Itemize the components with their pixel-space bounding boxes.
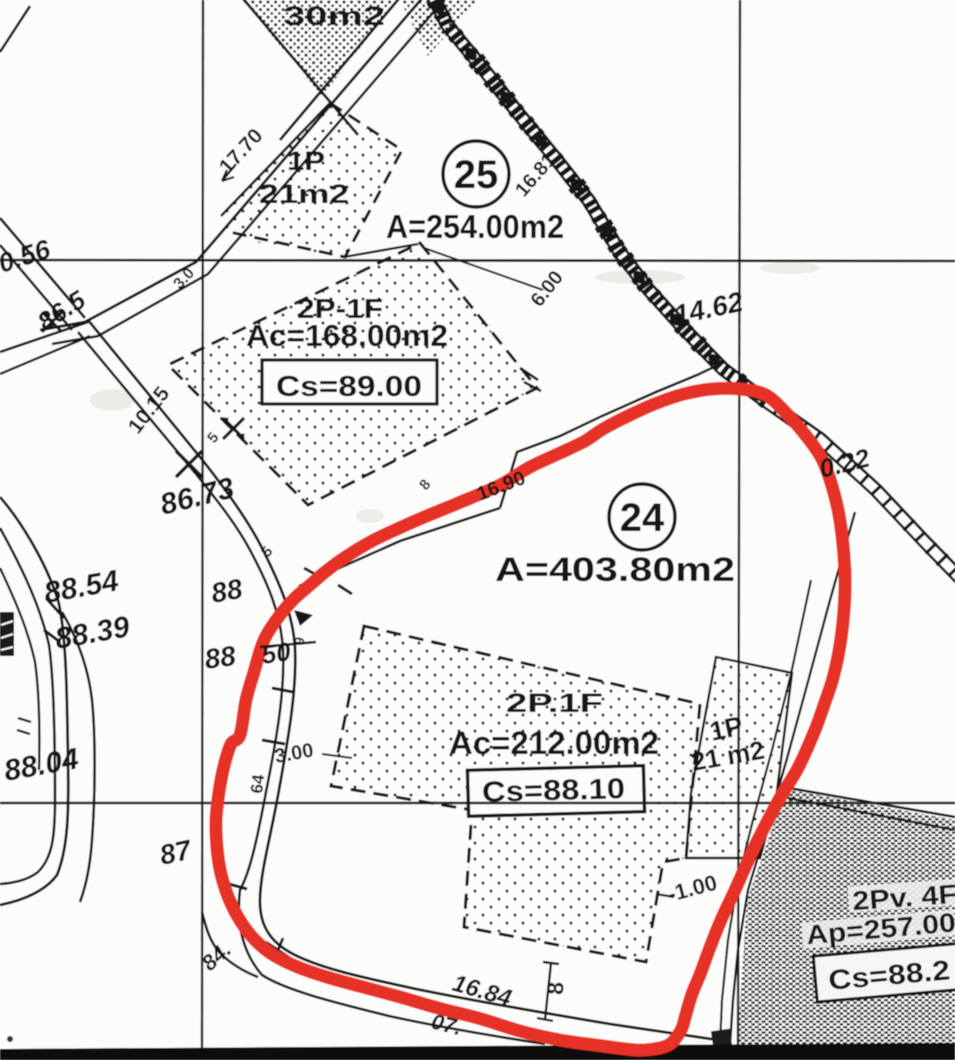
svg-text:A=254.00m2: A=254.00m2 [386,208,564,245]
svg-text:50: 50 [260,636,293,670]
svg-text:1P: 1P [287,146,325,176]
svg-text:Ac=168.00m2: Ac=168.00m2 [246,318,448,353]
svg-text:88: 88 [203,640,239,675]
svg-text:2P.1F: 2P.1F [506,688,603,718]
svg-text:Cs=88.10: Cs=88.10 [482,773,626,809]
svg-text:A=403.80m2: A=403.80m2 [495,551,735,589]
svg-text:21m2: 21m2 [259,179,349,209]
svg-text:64: 64 [247,773,268,795]
svg-text:24: 24 [620,496,665,540]
svg-text:Ac=212.00m2: Ac=212.00m2 [449,725,659,761]
svg-text:25: 25 [454,153,499,197]
svg-text:30m2: 30m2 [283,1,385,31]
svg-text:8: 8 [542,981,568,995]
svg-text:Cs=89.00: Cs=89.00 [276,371,422,403]
svg-text:88: 88 [209,573,245,609]
